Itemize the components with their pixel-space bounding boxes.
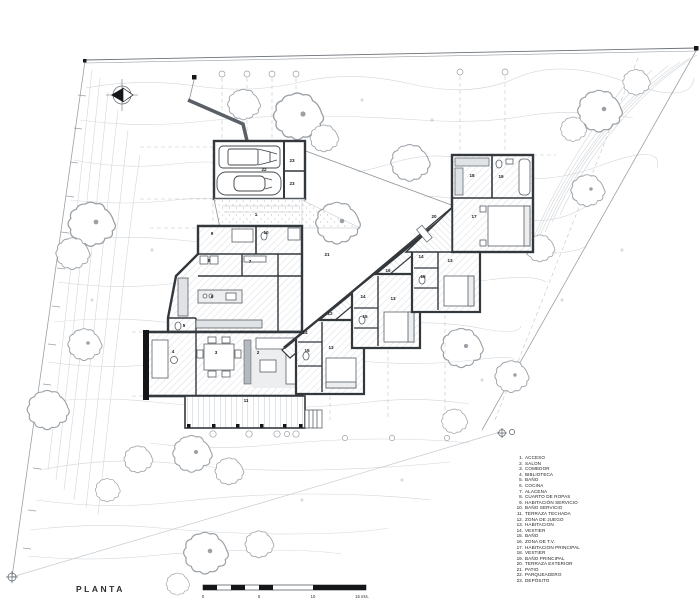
scale-tick-label: 0 [202,594,205,599]
service-wing [168,226,302,335]
floor-plan-drawing: 1234567891011121313131414141515151617181… [0,0,700,609]
legend-item: 23.DEPÓSITO [514,578,580,584]
room-number-label: 12 [327,311,333,316]
room-number-label: 18 [469,173,475,178]
drawing-title: PLANTA [76,584,125,594]
room-number-label: 22 [261,167,267,172]
room-number-label: 13 [390,296,396,301]
room-number-label: 10 [263,230,269,235]
room-number-label: 23 [289,181,295,186]
toilet [496,160,502,168]
desk-chair [171,357,178,364]
room-number-label: 15 [362,314,368,319]
library-desk [152,340,168,378]
shower [288,228,300,240]
master-suite [452,155,533,252]
service-bed [232,229,253,242]
legend-list: 1.ACCESO2.SALON3.COMEDOR4.BIBLIOTECA5.BA… [514,455,580,584]
boundary-corner-marker [694,46,699,51]
scale-tick-label: 15 mts. [355,594,369,599]
pantry-shelf [244,256,266,262]
room-number-label: 20 [431,214,437,219]
sink [506,159,513,164]
toilet [303,352,309,360]
room-number-label: 2 [257,350,260,355]
bathtub [519,159,530,195]
covered-terrace [185,396,322,428]
dining-table [204,344,234,370]
house-plan: 1234567891011121313131414141515151617181… [143,141,533,428]
room-number-label: 7 [249,259,252,264]
room-number-label: 5 [183,323,186,328]
west-retaining-wall [143,330,149,400]
coffee-table [260,360,276,372]
bedroom-module [352,274,420,348]
bar-counter [196,320,262,328]
room-number-label: 14 [360,294,366,299]
site-plan-sheet: 1234567891011121313131414141515151617181… [0,0,700,609]
room-number-label: 15 [304,348,310,353]
room-number-label: 1 [255,212,258,217]
kitchen-counter [178,278,188,316]
scale-tick-label: 10 [311,594,316,599]
room-number-label: 3 [215,350,218,355]
console-sideboard [244,340,251,384]
terrace-steps [305,410,322,428]
room-number-label: 21 [324,252,330,257]
legend: 1.ACCESO2.SALON3.COMEDOR4.BIBLIOTECA5.BA… [512,454,582,585]
survey-point-marker [6,428,515,583]
room-number-label: 14 [418,254,424,259]
room-number-label: 8 [208,258,211,263]
room-number-label: 9 [211,231,214,236]
suv-car [219,146,280,168]
room-number-label: 19 [498,174,504,179]
scale-tick-label: 5 [258,594,261,599]
room-number-label: 11 [244,398,249,403]
room-number-label: 13 [447,258,453,263]
dryer [210,256,218,264]
room-number-label: 14 [302,330,308,335]
room-number-label: 17 [471,214,477,219]
room-number-label: 16 [385,268,391,273]
closet-shelf [455,158,489,166]
closet-shelf [455,168,463,195]
room-number-label: 15 [420,274,426,279]
room-number-label: 13 [328,345,334,350]
room-number-label: 6 [211,294,214,299]
garage-block [214,141,305,199]
legend-item-number: 23. [514,578,523,584]
north-arrow-icon [106,79,138,111]
boundary-corner-marker [83,59,87,63]
sedan-car [217,172,281,195]
room-number-label: 4 [172,349,175,354]
legend-item-label: DEPÓSITO [525,578,549,584]
room-number-label: 23 [289,158,295,163]
scale-bar: 0 5 10 15 mts. [202,585,369,599]
living-block [143,330,302,400]
toilet [175,322,181,330]
boundary-corner-marker [192,75,197,80]
